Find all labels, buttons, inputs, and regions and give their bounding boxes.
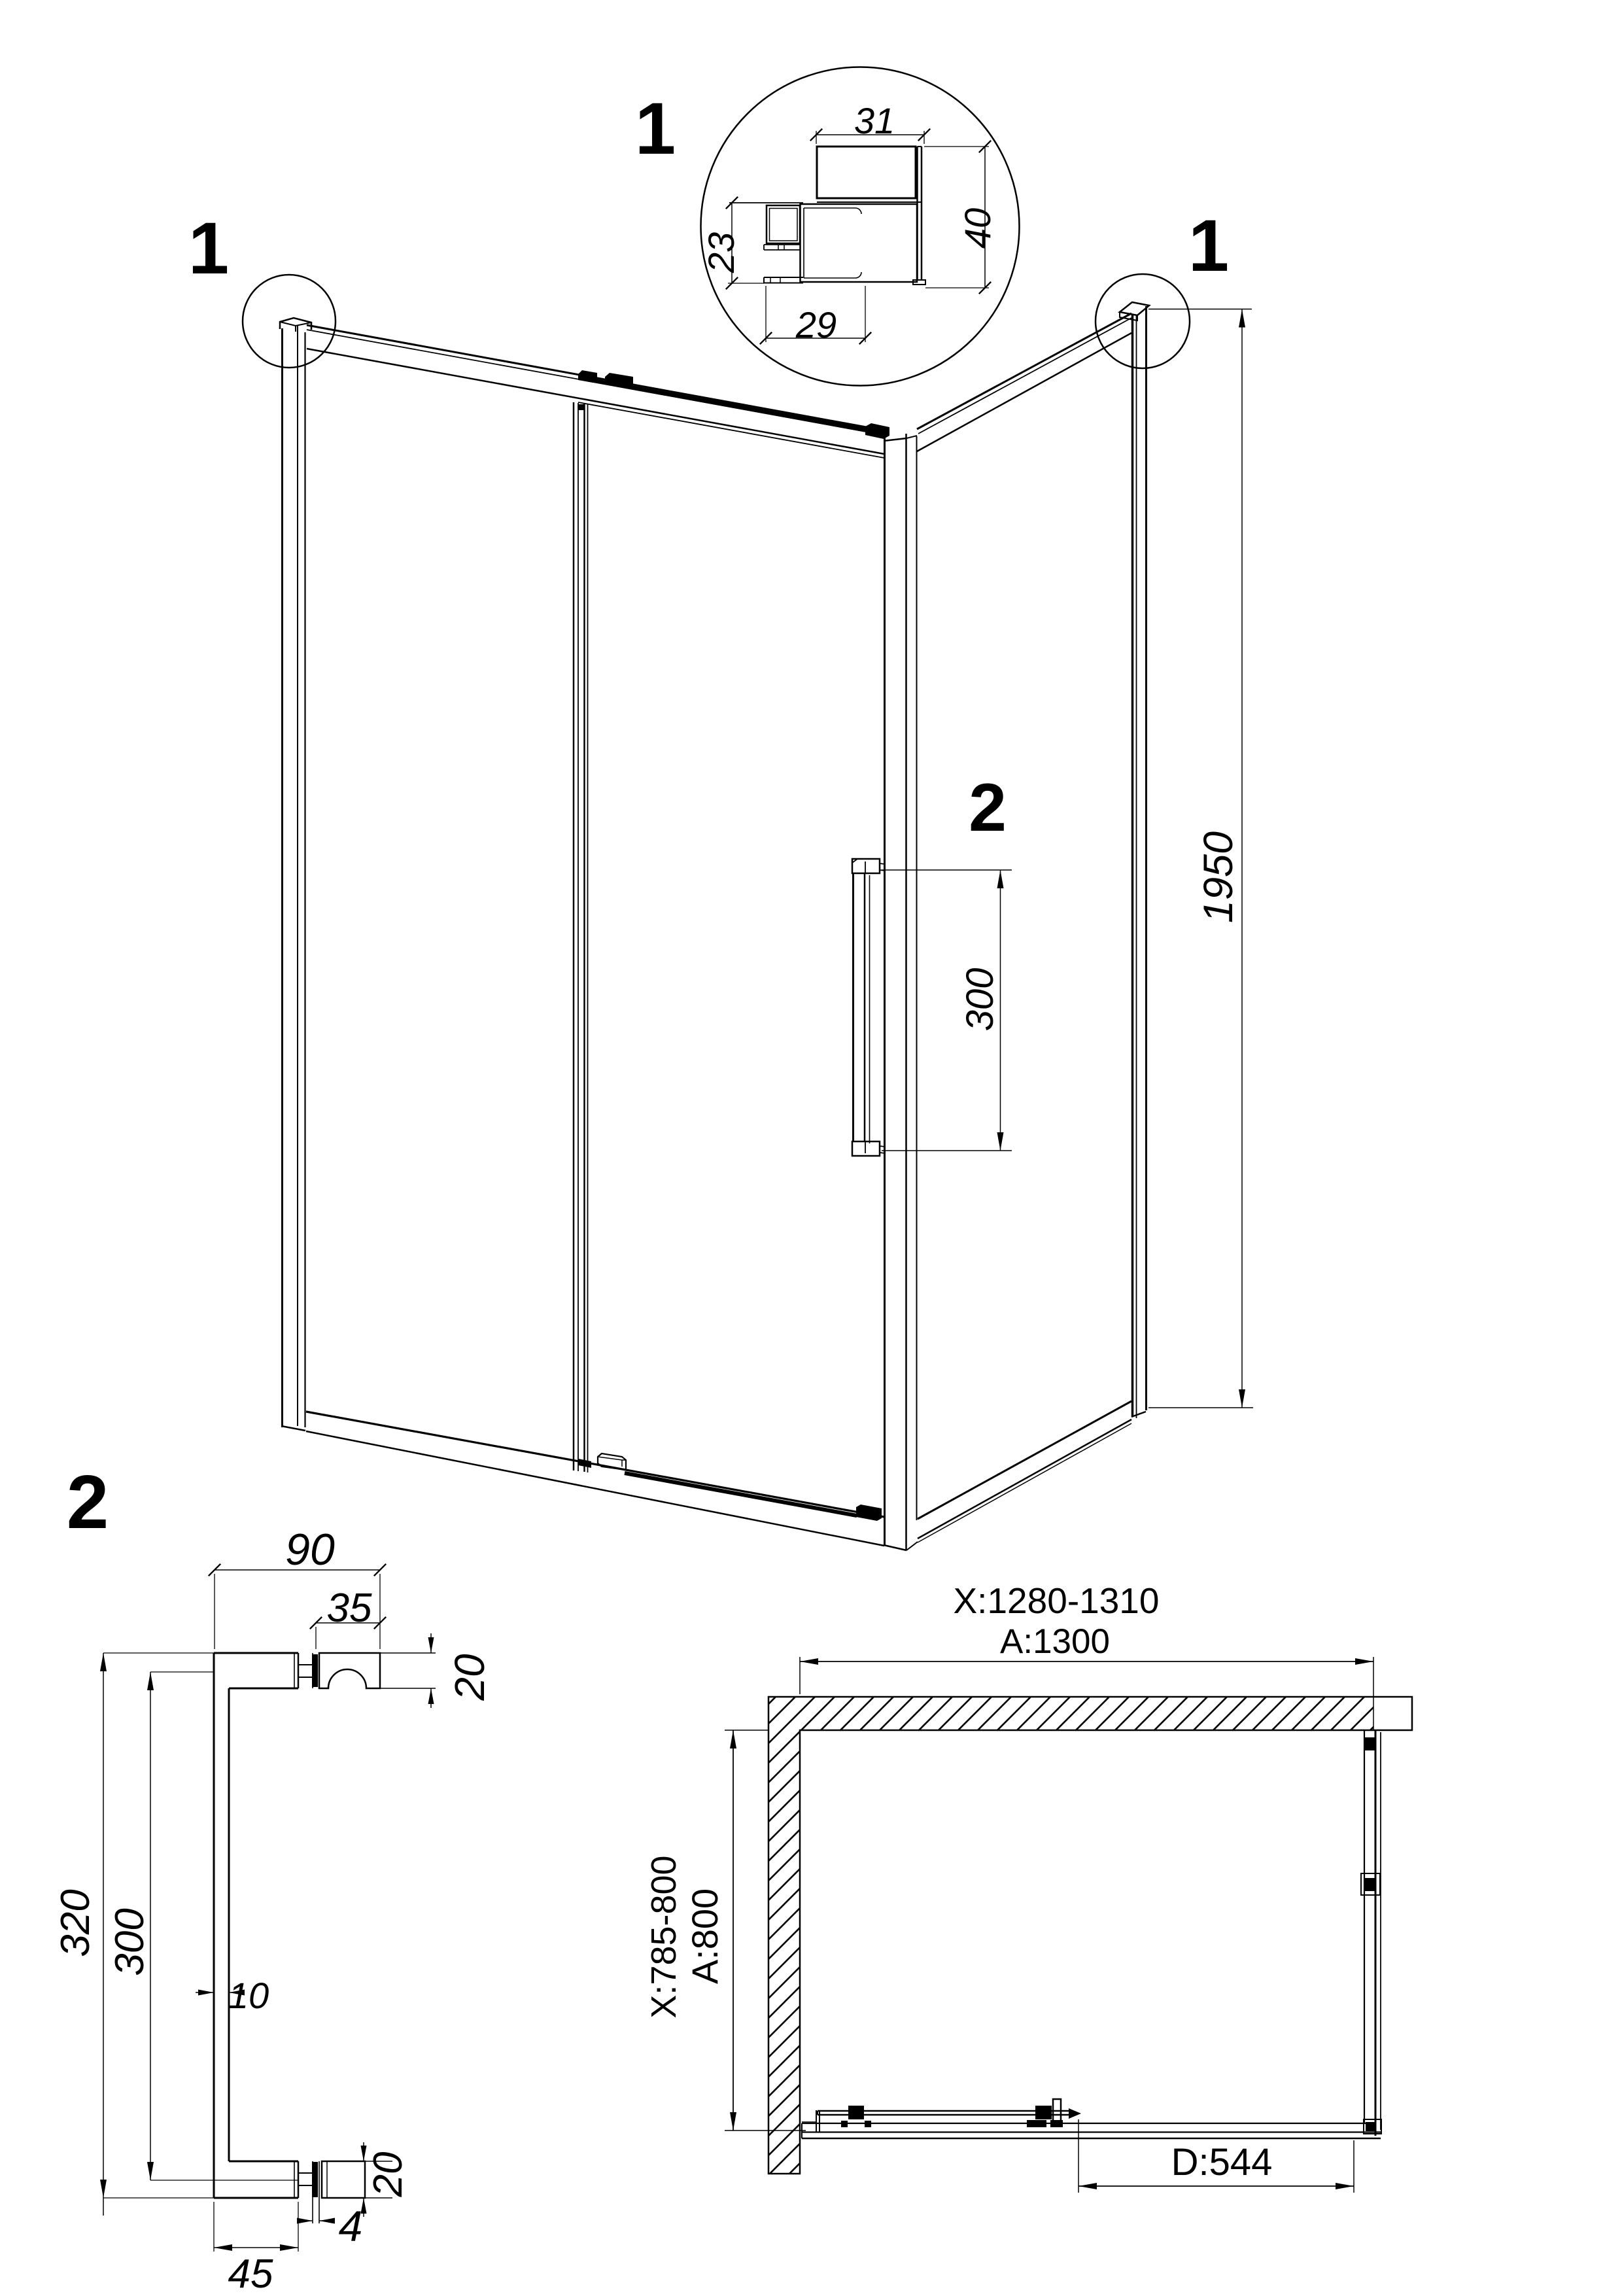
svg-text:4: 4 [339,2202,363,2250]
svg-text:20: 20 [366,2152,411,2198]
svg-text:2: 2 [67,1459,109,1544]
svg-text:1: 1 [1188,205,1229,287]
svg-text:320: 320 [53,1889,98,1957]
svg-text:X:785-800: X:785-800 [644,1855,683,2018]
svg-text:A:1300: A:1300 [1000,1622,1110,1661]
svg-text:D:544: D:544 [1171,2141,1273,2183]
svg-text:35: 35 [327,1586,372,1631]
svg-text:2: 2 [969,770,1007,846]
svg-text:23: 23 [700,232,742,273]
svg-text:10: 10 [228,1975,269,2016]
svg-text:20: 20 [446,1654,493,1701]
svg-text:40: 40 [957,208,998,249]
svg-text:31: 31 [854,100,895,141]
svg-text:1: 1 [188,207,229,289]
svg-text:X:1280-1310: X:1280-1310 [954,1580,1160,1621]
svg-text:A:800: A:800 [684,1888,725,1984]
svg-text:29: 29 [795,304,837,345]
svg-text:1: 1 [635,88,676,169]
svg-text:45: 45 [228,2252,273,2296]
svg-text:1950: 1950 [1196,831,1241,923]
svg-text:300: 300 [959,968,1001,1032]
svg-text:300: 300 [107,1908,152,1975]
svg-text:90: 90 [285,1525,335,1574]
